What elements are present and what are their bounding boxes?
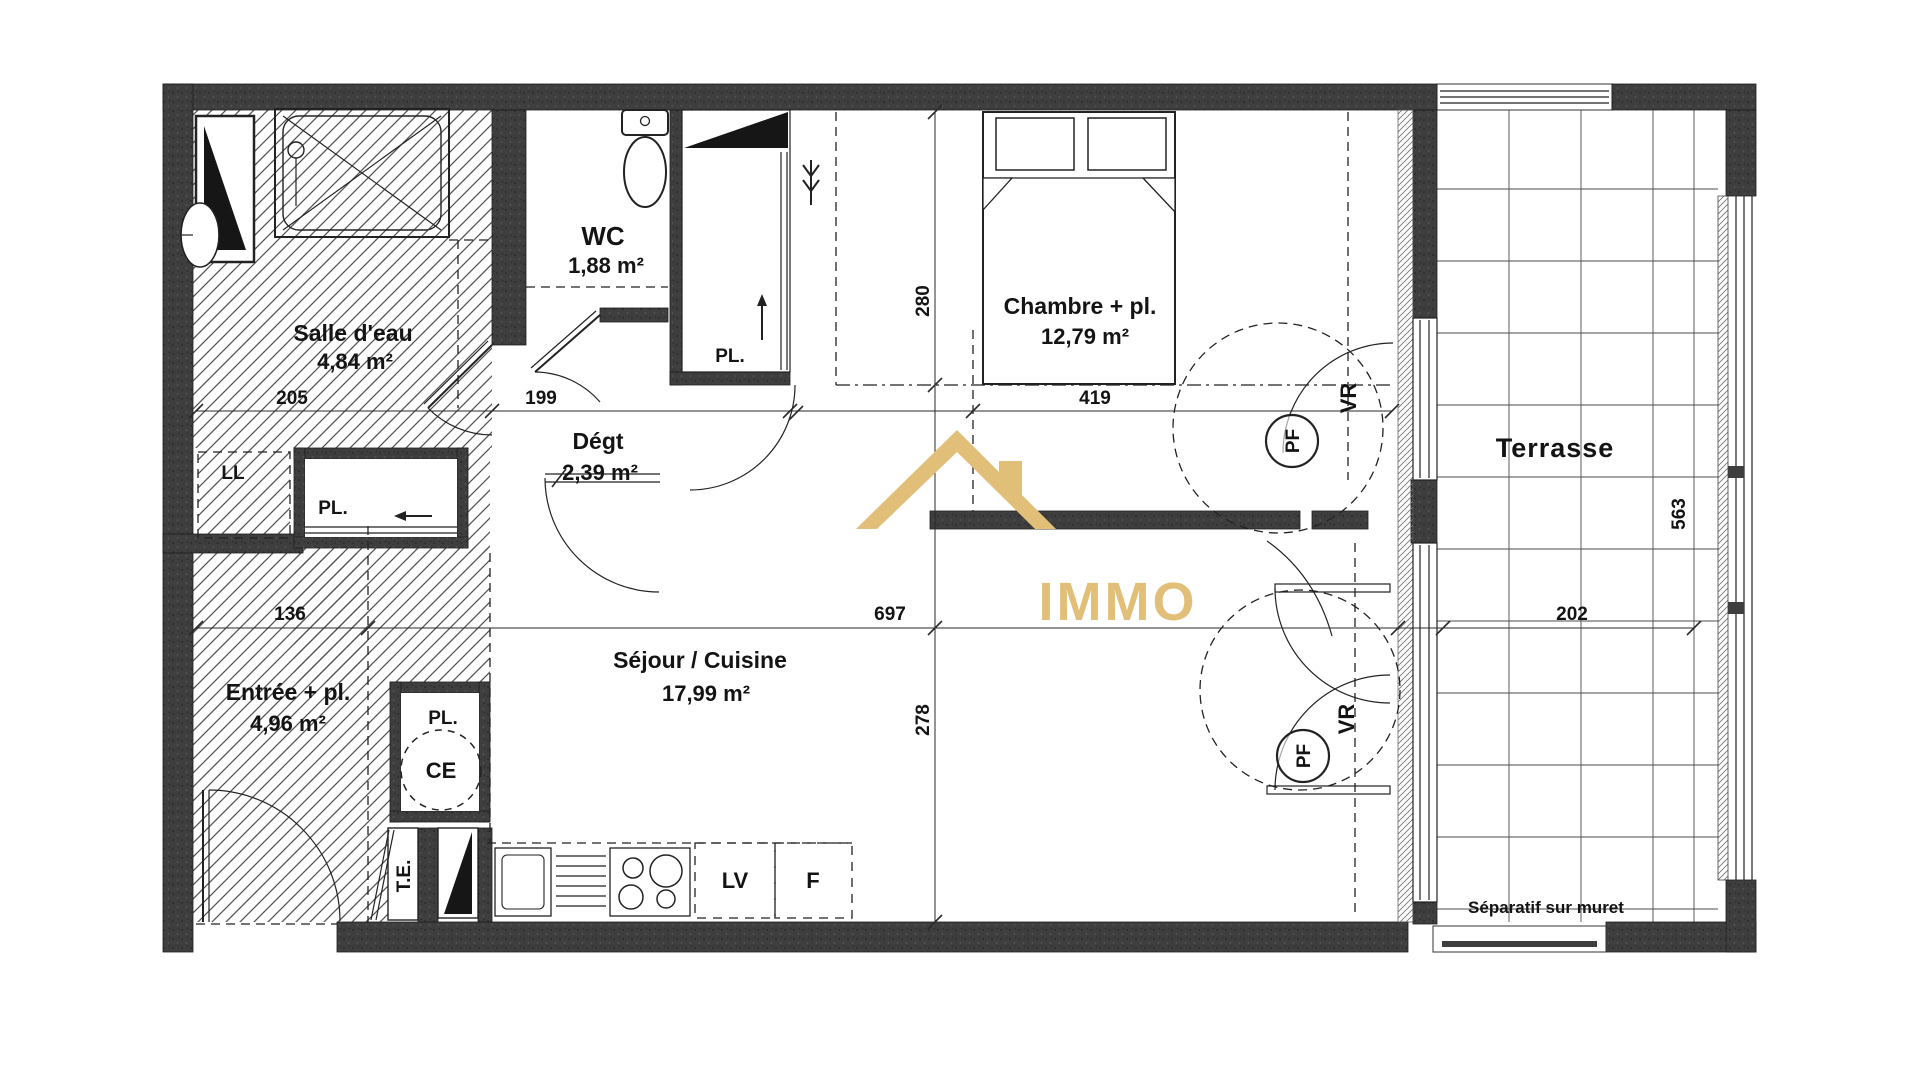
te-label: T.E. [394, 860, 415, 893]
room-area-chambre: 12,79 m² [1041, 324, 1129, 349]
pillow [1088, 118, 1166, 170]
dim-278: 278 [913, 704, 934, 736]
closet-ce-top [390, 682, 490, 693]
room-label-degt: Dégt [572, 428, 623, 454]
washbasin [181, 203, 219, 267]
pl-label-hall: PL. [715, 346, 745, 367]
pf-label-sejour: PF [1294, 744, 1315, 768]
kitchen-counter [487, 843, 852, 918]
closet-hall-bottom [670, 372, 790, 385]
ce-label: CE [426, 758, 457, 783]
wall-chambre-sejour-2 [1312, 511, 1368, 529]
separatif-muret [1433, 926, 1606, 952]
pf-vr-annotations: PF VR PF VR [1266, 383, 1361, 782]
wall-wc-stub [600, 308, 668, 322]
wall-chambre-sejour [930, 511, 1300, 529]
lv-label: LV [722, 868, 749, 893]
arrow-double-down-icon [803, 160, 819, 205]
wall-te-separator [418, 828, 438, 922]
wall-salledeau-wc [492, 110, 526, 345]
wall-nook [163, 534, 303, 553]
dim-205: 205 [276, 388, 308, 409]
pf-label-bedroom: PF [1283, 429, 1304, 453]
wall-bottom [337, 922, 1408, 952]
facade-window-band [1398, 110, 1413, 922]
room-label-entree: Entrée + pl. [226, 679, 351, 705]
floor-plan-drawing: IMMO PF VR PF VR Salle d'eau 4,84 m² WC … [0, 0, 1913, 1080]
entree-hatch-strip [468, 448, 490, 553]
entree-hatch-column [368, 682, 390, 922]
wall-top-right [1612, 84, 1756, 110]
wall-facade-lower [1413, 902, 1437, 924]
room-label-chambre: Chambre + pl. [1004, 293, 1157, 319]
room-label-wc: WC [581, 221, 625, 251]
dim-280: 280 [913, 285, 934, 317]
floor-plan-page: IMMO PF VR PF VR Salle d'eau 4,84 m² WC … [0, 0, 1913, 1080]
dim-563: 563 [1669, 498, 1690, 530]
dim-419: 419 [1079, 388, 1111, 409]
entree-hatch-corridor [294, 548, 490, 682]
dim-202: 202 [1556, 604, 1588, 625]
dim-697: 697 [874, 604, 906, 625]
f-label: F [806, 868, 819, 893]
closet-hall-left [670, 110, 682, 385]
toilet [622, 110, 668, 207]
sink-unit [495, 848, 551, 916]
room-area-entree: 4,96 m² [250, 711, 326, 736]
vr-label-sejour: VR [1334, 704, 1359, 735]
immo-logo: IMMO [856, 430, 1197, 632]
closet-ce-bottom [390, 811, 490, 822]
ll-label: LL [221, 463, 245, 484]
dim-136: 136 [274, 604, 306, 625]
room-area-degt: 2,39 m² [562, 460, 638, 485]
room-area-sejour: 17,99 m² [662, 681, 750, 706]
wall-corner-post [1726, 880, 1756, 952]
separatif-label: Séparatif sur muret [1468, 898, 1624, 917]
ll-nook-hatch [198, 448, 290, 538]
drainboard [556, 856, 606, 906]
room-label-salle-deau: Salle d'eau [293, 320, 412, 346]
vr-label-bedroom: VR [1336, 383, 1361, 414]
railing-post [1728, 466, 1744, 478]
room-area-salle-deau: 4,84 m² [317, 349, 393, 374]
wall-facade-pillar [1411, 480, 1437, 543]
room-label-sejour: Séjour / Cuisine [613, 647, 787, 673]
facade-window-frames [1413, 318, 1437, 902]
wall-right-upper [1726, 110, 1756, 196]
closet-pl-bottom [294, 537, 468, 548]
closet-pl-top [294, 448, 468, 459]
hall-closet [682, 110, 790, 372]
terrace-top-railing [1437, 84, 1612, 110]
pillow [996, 118, 1074, 170]
logo-immo-text: IMMO [1039, 572, 1198, 632]
room-label-terrasse: Terrasse [1496, 433, 1615, 463]
room-area-wc: 1,88 m² [568, 253, 644, 278]
wall-top [163, 84, 1437, 110]
terrace-railing-hatch [1718, 196, 1728, 880]
closet-ce-right [479, 682, 490, 822]
dim-199: 199 [525, 388, 557, 409]
closet-ce-left [390, 682, 401, 822]
closet-pl-left [294, 448, 305, 548]
terrace [1437, 84, 1752, 922]
wall-facade-upper [1413, 110, 1437, 318]
pl-label-entree-closet: PL. [318, 498, 348, 519]
closet-pl-right [457, 448, 468, 548]
railing-post [1728, 602, 1744, 614]
pl-label-ce-closet: PL. [428, 708, 458, 729]
